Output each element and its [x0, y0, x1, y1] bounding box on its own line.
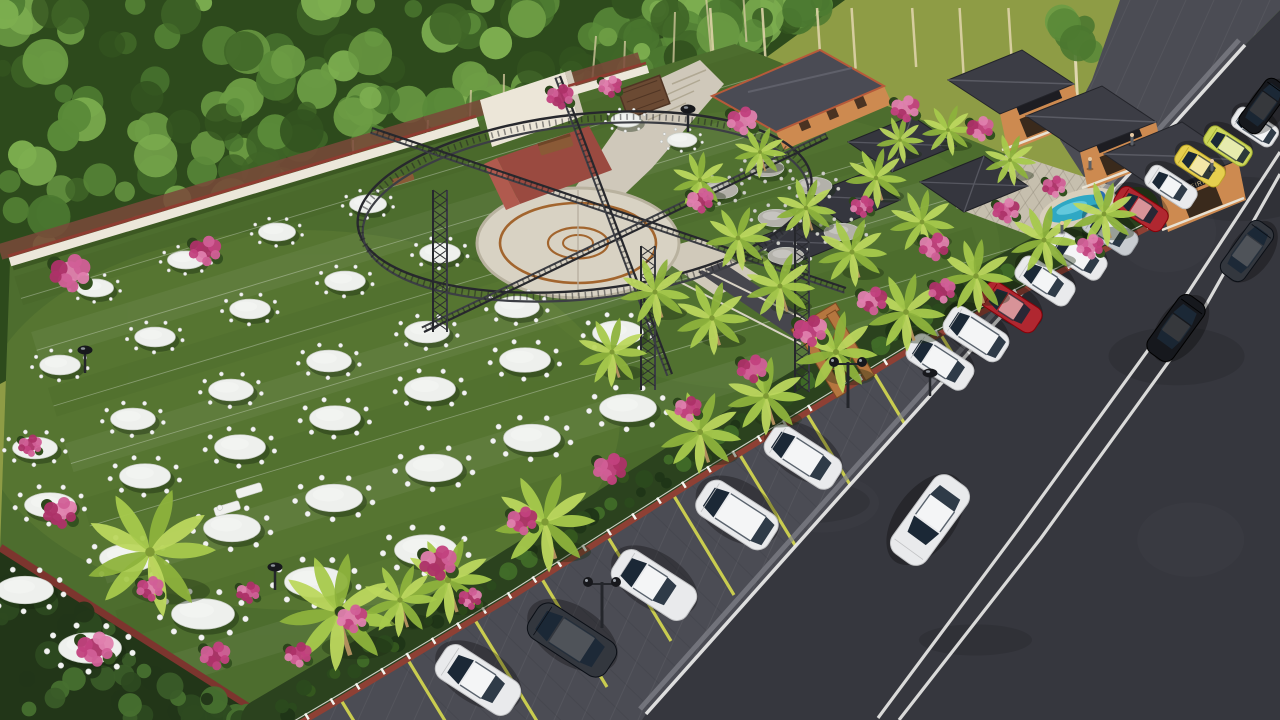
chair: [554, 452, 559, 457]
chair: [777, 242, 780, 245]
chair: [134, 347, 138, 351]
chair: [129, 327, 133, 331]
chair: [660, 395, 665, 400]
chair: [265, 319, 269, 323]
chair: [159, 260, 162, 263]
chair: [493, 348, 498, 353]
chair: [788, 186, 791, 189]
chair: [342, 294, 346, 298]
chair: [398, 454, 403, 459]
chair: [503, 451, 508, 456]
chair: [309, 430, 314, 435]
chair: [130, 434, 134, 438]
chair: [791, 177, 794, 180]
chair: [660, 140, 663, 143]
chair: [581, 333, 586, 338]
chair: [419, 445, 424, 450]
chair: [455, 263, 459, 267]
chair: [214, 459, 219, 464]
chair: [12, 458, 16, 462]
chair: [404, 342, 408, 346]
chair: [494, 317, 498, 321]
chair: [345, 195, 348, 198]
chair: [291, 241, 294, 244]
chair: [256, 380, 260, 384]
chair: [339, 343, 343, 347]
chair: [592, 394, 597, 399]
chair: [268, 530, 273, 535]
chair: [183, 272, 186, 275]
chair: [39, 375, 43, 379]
chair: [163, 251, 166, 254]
chair: [273, 300, 277, 304]
chair: [449, 402, 454, 407]
chair: [366, 485, 371, 490]
chair: [236, 464, 241, 469]
chair: [319, 475, 324, 480]
chair: [441, 369, 446, 374]
chair: [113, 464, 118, 469]
venue-aerial-render: FIRIN: [0, 0, 1280, 720]
chair: [52, 459, 56, 463]
chair: [259, 391, 263, 395]
chair: [455, 333, 459, 337]
chair: [446, 446, 451, 451]
chair: [554, 349, 559, 354]
chair: [103, 623, 109, 629]
chair: [391, 205, 394, 208]
chair: [456, 482, 461, 487]
chair: [227, 426, 232, 431]
chair: [86, 669, 92, 675]
chair: [164, 321, 168, 325]
chair: [254, 542, 259, 547]
chair: [203, 379, 207, 383]
chair: [92, 300, 95, 303]
chair: [512, 339, 517, 344]
chair: [360, 291, 364, 295]
chair: [176, 245, 179, 248]
chair: [254, 223, 257, 226]
chair: [239, 293, 243, 297]
chair: [680, 150, 683, 153]
chair: [544, 416, 549, 421]
chair: [346, 476, 351, 481]
chair: [229, 319, 233, 323]
chair: [13, 505, 18, 510]
chair: [143, 401, 147, 405]
chair: [103, 273, 106, 276]
chair: [57, 577, 62, 582]
chair: [50, 633, 56, 639]
chair: [414, 243, 418, 247]
chair: [125, 634, 131, 640]
chair: [643, 113, 646, 116]
chair: [341, 204, 344, 207]
chair: [417, 368, 422, 373]
chair: [586, 321, 591, 326]
chair: [767, 204, 770, 207]
chair: [298, 224, 301, 227]
chair: [466, 254, 470, 258]
chair: [637, 127, 640, 130]
chair: [382, 213, 385, 216]
chair: [743, 159, 746, 162]
chair: [82, 507, 87, 512]
chair: [219, 372, 223, 376]
chair: [564, 425, 569, 430]
chair: [389, 196, 392, 199]
chair: [439, 525, 445, 531]
chair: [371, 282, 375, 286]
chair: [92, 544, 97, 549]
chair: [244, 506, 249, 511]
chair: [392, 468, 397, 473]
chair: [57, 378, 61, 382]
chair: [161, 420, 165, 424]
chair: [305, 511, 310, 516]
chair: [10, 567, 15, 572]
chair: [251, 427, 256, 432]
chair: [300, 557, 306, 563]
chair: [37, 568, 42, 573]
chair: [356, 512, 361, 517]
chair: [693, 148, 696, 151]
chair: [167, 269, 170, 272]
chair: [276, 310, 280, 314]
chair: [132, 455, 137, 460]
chair: [459, 378, 464, 383]
chair: [170, 347, 174, 351]
chair: [743, 191, 746, 194]
chair: [499, 372, 504, 377]
chair: [150, 430, 154, 434]
chair: [247, 322, 251, 326]
chair: [356, 584, 362, 590]
chair: [171, 629, 177, 635]
chair: [110, 429, 114, 433]
chair: [463, 244, 467, 248]
chair: [399, 321, 403, 325]
chair: [405, 481, 410, 486]
chair: [357, 362, 361, 366]
chair: [462, 391, 467, 396]
chair: [181, 338, 185, 342]
chair: [850, 218, 853, 221]
chair: [352, 568, 358, 574]
chair: [200, 269, 203, 272]
chair: [833, 218, 836, 221]
chair: [624, 427, 629, 432]
chair: [21, 609, 26, 614]
chair: [108, 476, 113, 481]
chair: [243, 616, 249, 622]
chair: [496, 424, 501, 429]
chair: [334, 265, 338, 269]
chair: [466, 552, 472, 558]
chair: [178, 328, 182, 332]
chair: [269, 436, 274, 441]
chair: [292, 498, 297, 503]
chair: [259, 460, 264, 465]
chair: [228, 547, 233, 552]
chair: [354, 265, 358, 269]
chair: [47, 604, 52, 609]
chair: [740, 182, 743, 185]
chair: [786, 160, 789, 163]
chair: [326, 376, 330, 380]
chair: [329, 557, 335, 563]
chair: [419, 263, 423, 267]
chair: [284, 597, 290, 603]
chair: [69, 349, 73, 353]
chair: [30, 365, 34, 369]
chair: [76, 297, 79, 300]
chair: [557, 362, 562, 367]
chair: [152, 350, 156, 354]
chair: [141, 493, 146, 498]
chair: [208, 400, 212, 404]
chair: [701, 141, 704, 144]
chair: [58, 663, 64, 669]
chair: [250, 232, 253, 235]
chair: [410, 525, 416, 531]
chair: [100, 419, 104, 423]
chair: [319, 271, 323, 275]
render-viewport: FIRIN: [0, 0, 1280, 720]
chair: [18, 493, 23, 498]
chair: [837, 187, 840, 190]
chair: [484, 307, 488, 311]
chair: [2, 448, 6, 452]
chair: [264, 515, 269, 520]
chair: [367, 420, 372, 425]
chair: [258, 241, 261, 244]
chair: [398, 377, 403, 382]
chair: [228, 405, 232, 409]
chair: [605, 312, 610, 317]
chair: [330, 517, 335, 522]
chair: [490, 438, 495, 443]
chair: [599, 421, 604, 426]
chair: [865, 233, 868, 236]
chair: [528, 457, 533, 462]
chair: [358, 189, 361, 192]
chair: [63, 449, 67, 453]
chair: [667, 147, 670, 150]
chair: [156, 456, 161, 461]
chair: [61, 592, 66, 597]
chair: [203, 447, 208, 452]
chair: [125, 337, 129, 341]
chair: [393, 389, 398, 394]
chair: [114, 664, 120, 670]
chair: [315, 281, 319, 285]
chair: [828, 195, 831, 198]
chair: [354, 351, 358, 355]
chair: [663, 133, 666, 136]
chair: [75, 375, 79, 379]
chair: [734, 199, 737, 202]
chair: [346, 398, 351, 403]
chair: [650, 422, 655, 427]
chair: [60, 438, 64, 442]
chair: [118, 289, 121, 292]
chair: [517, 415, 522, 420]
chair: [158, 409, 162, 413]
chair: [44, 648, 50, 654]
chair: [61, 485, 66, 490]
chair: [174, 465, 179, 470]
chair: [410, 253, 414, 257]
chair: [470, 470, 475, 475]
chair: [217, 505, 222, 510]
chair: [629, 313, 634, 318]
chair: [394, 332, 398, 336]
chair: [157, 614, 163, 620]
chair: [199, 635, 205, 641]
chair: [7, 437, 11, 441]
chair: [34, 355, 38, 359]
chair: [368, 272, 372, 276]
chair: [298, 418, 303, 423]
chair: [317, 343, 321, 347]
chair: [105, 408, 109, 412]
chair: [24, 517, 29, 522]
chair: [301, 350, 305, 354]
chair: [177, 478, 182, 483]
chair: [303, 406, 308, 411]
chair: [46, 522, 51, 527]
chair: [296, 361, 300, 365]
chair: [415, 314, 419, 318]
chair: [300, 233, 303, 236]
chair: [109, 297, 112, 300]
chair: [220, 309, 224, 313]
chair: [521, 377, 526, 382]
chair: [130, 650, 136, 656]
chair: [267, 217, 270, 220]
chair: [298, 484, 303, 489]
chair: [780, 177, 783, 180]
chair: [274, 244, 277, 247]
chair: [424, 347, 428, 351]
chair: [32, 463, 36, 467]
chair: [789, 169, 792, 172]
chair: [227, 630, 233, 636]
chair: [534, 318, 538, 322]
chair: [324, 291, 328, 295]
chair: [568, 440, 573, 445]
chair: [386, 535, 392, 541]
chair: [380, 550, 386, 556]
chair: [404, 401, 409, 406]
chair: [259, 293, 263, 297]
chair: [79, 494, 84, 499]
chair: [674, 128, 677, 131]
chair: [331, 435, 336, 440]
chair: [45, 430, 49, 434]
chair: [488, 360, 493, 365]
chair: [394, 565, 400, 571]
chair: [86, 558, 91, 563]
chair: [285, 217, 288, 220]
chair: [23, 430, 27, 434]
chair: [198, 390, 202, 394]
chair: [624, 130, 627, 133]
chair: [536, 340, 541, 345]
chair: [216, 589, 222, 595]
chair: [74, 623, 80, 629]
chair: [49, 349, 53, 353]
chair: [444, 343, 448, 347]
chair: [750, 218, 753, 221]
chair: [426, 406, 431, 411]
chair: [322, 397, 327, 402]
chair: [144, 321, 148, 325]
chair: [544, 373, 549, 378]
chair: [618, 108, 621, 111]
chair: [430, 487, 435, 492]
chair: [349, 213, 352, 216]
chair: [239, 600, 245, 606]
chair: [116, 280, 119, 283]
chair: [452, 322, 456, 326]
chair: [816, 232, 819, 235]
chair: [370, 500, 375, 505]
chair: [514, 322, 518, 326]
chair: [306, 371, 310, 375]
chair: [272, 449, 277, 454]
chair: [740, 168, 743, 171]
chair: [753, 209, 756, 212]
chair: [613, 385, 618, 390]
chair: [364, 407, 369, 412]
chair: [208, 435, 213, 440]
chair: [466, 455, 471, 460]
chair: [834, 178, 837, 181]
chair: [611, 127, 614, 130]
chair: [699, 133, 702, 136]
chair: [248, 401, 252, 405]
chair: [586, 408, 591, 413]
chair: [763, 180, 766, 183]
chair: [346, 372, 350, 376]
chair: [545, 308, 549, 312]
chair: [241, 372, 245, 376]
chair: [224, 299, 228, 303]
chair: [37, 484, 42, 489]
chair: [449, 237, 453, 241]
chair: [119, 488, 124, 493]
chair: [822, 172, 825, 175]
chair: [354, 431, 359, 436]
chair: [164, 489, 169, 494]
chair: [121, 401, 125, 405]
